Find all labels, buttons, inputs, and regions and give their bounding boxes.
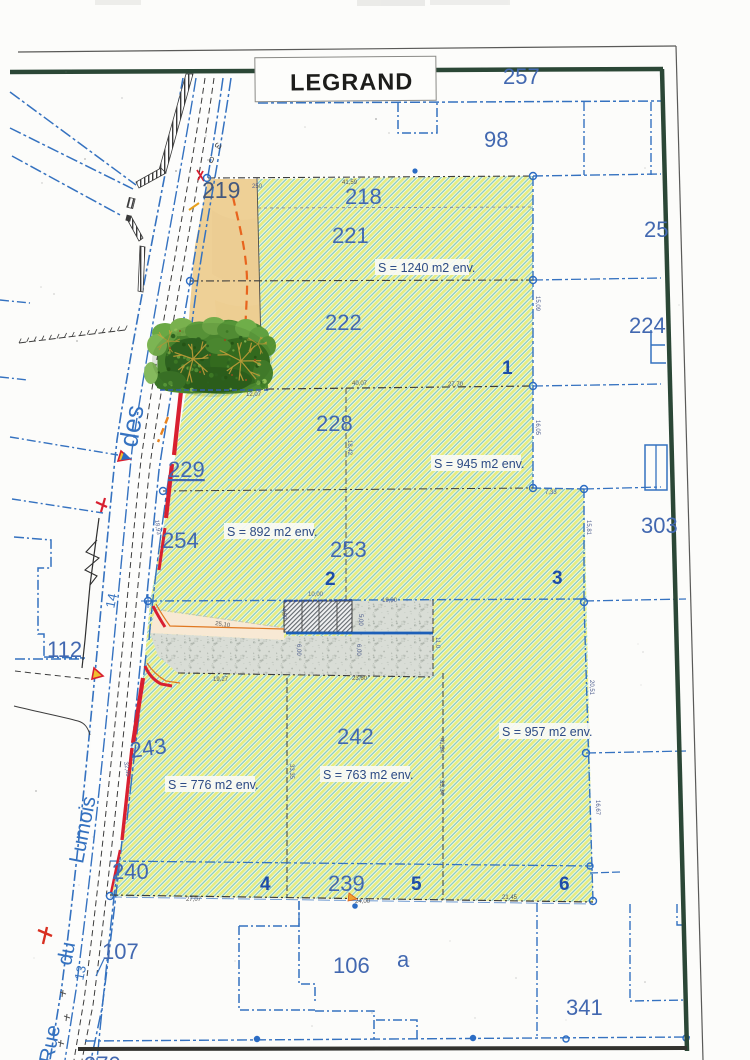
svg-text:14: 14 — [102, 592, 120, 609]
svg-text:10,00: 10,00 — [308, 592, 324, 598]
svg-text:7,33: 7,33 — [545, 490, 557, 496]
svg-text:219: 219 — [202, 177, 240, 203]
svg-text:S = 945 m2 env.: S = 945 m2 env. — [434, 457, 524, 471]
svg-text:12,07: 12,07 — [246, 392, 262, 398]
svg-text:20,51: 20,51 — [588, 680, 594, 696]
svg-text:224: 224 — [629, 313, 666, 338]
svg-text:18,42: 18,42 — [346, 440, 352, 456]
svg-text:24,00: 24,00 — [355, 899, 371, 905]
svg-text:221: 221 — [332, 223, 369, 248]
svg-text:15,09: 15,09 — [534, 296, 540, 312]
svg-text:16,05: 16,05 — [534, 420, 540, 436]
svg-text:19,90: 19,90 — [382, 598, 398, 604]
svg-text:4: 4 — [260, 874, 271, 895]
svg-text:303: 303 — [641, 513, 678, 538]
svg-text:19,27: 19,27 — [213, 677, 229, 683]
svg-text:243: 243 — [128, 733, 168, 763]
svg-text:16,67: 16,67 — [594, 800, 600, 816]
svg-text:2: 2 — [325, 569, 336, 590]
svg-text:S = 776 m2 env.: S = 776 m2 env. — [168, 778, 258, 792]
svg-text:98: 98 — [484, 127, 508, 152]
svg-text:S = 763 m2 env.: S = 763 m2 env. — [323, 768, 413, 782]
svg-text:11,0: 11,0 — [434, 637, 440, 649]
svg-text:254: 254 — [162, 528, 199, 553]
svg-text:5,00: 5,00 — [357, 614, 363, 626]
svg-text:40,07: 40,07 — [352, 381, 368, 387]
svg-text:S = 1240 m2 env.: S = 1240 m2 env. — [378, 261, 475, 275]
svg-text:25: 25 — [644, 217, 668, 242]
svg-text:a: a — [397, 947, 410, 972]
svg-text:23,60: 23,60 — [352, 676, 368, 682]
svg-text:107: 107 — [102, 939, 139, 964]
svg-text:3: 3 — [552, 568, 563, 589]
svg-text:S = 957 m2 env.: S = 957 m2 env. — [502, 725, 592, 739]
svg-text:229: 229 — [168, 457, 205, 482]
svg-text:253: 253 — [330, 537, 367, 562]
svg-text:222: 222 — [325, 310, 362, 335]
svg-text:du: du — [53, 940, 80, 967]
svg-text:27,70: 27,70 — [448, 382, 464, 388]
svg-text:4,50: 4,50 — [280, 608, 287, 621]
svg-text:6,00: 6,00 — [355, 644, 361, 656]
svg-text:106: 106 — [333, 953, 370, 978]
svg-text:21,45: 21,45 — [502, 895, 518, 901]
svg-text:33,34: 33,34 — [438, 780, 444, 796]
svg-text:112: 112 — [47, 637, 82, 662]
svg-text:250: 250 — [252, 184, 263, 190]
svg-text:27,07: 27,07 — [186, 897, 202, 903]
svg-text:218: 218 — [345, 184, 382, 209]
svg-text:228: 228 — [316, 411, 353, 436]
svg-text:15,81: 15,81 — [585, 520, 591, 536]
svg-text:LEGRAND: LEGRAND — [290, 68, 413, 95]
svg-text:970: 970 — [84, 1052, 121, 1060]
svg-text:6,00: 6,00 — [295, 644, 301, 656]
svg-text:41,24: 41,24 — [438, 738, 444, 754]
svg-text:341: 341 — [566, 995, 603, 1020]
svg-text:242: 242 — [337, 724, 374, 749]
svg-text:5: 5 — [411, 874, 422, 895]
svg-text:33,35: 33,35 — [288, 764, 294, 780]
svg-text:6: 6 — [559, 874, 570, 895]
svg-text:240: 240 — [112, 859, 149, 884]
svg-text:S = 892 m2 env.: S = 892 m2 env. — [227, 525, 317, 539]
svg-text:13: 13 — [71, 964, 89, 981]
svg-text:239: 239 — [328, 871, 365, 896]
svg-text:1: 1 — [502, 358, 513, 379]
svg-text:257: 257 — [503, 64, 540, 89]
svg-text:41,59: 41,59 — [342, 180, 358, 186]
